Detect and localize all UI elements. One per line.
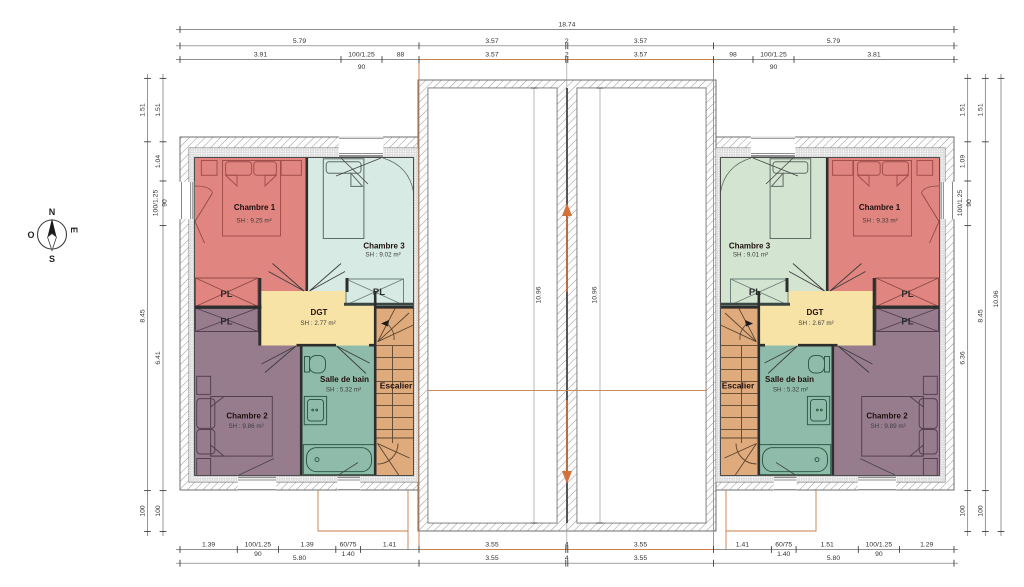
svg-text:1.51: 1.51: [140, 103, 147, 116]
svg-text:1.04: 1.04: [155, 155, 162, 168]
svg-text:SH : 2.77 m²: SH : 2.77 m²: [300, 320, 335, 327]
svg-text:DGT: DGT: [311, 308, 328, 317]
svg-text:1.40: 1.40: [777, 551, 790, 558]
svg-text:SH : 9.89 m²: SH : 9.89 m²: [870, 423, 905, 430]
svg-text:Chambre 2: Chambre 2: [226, 411, 268, 420]
svg-text:6.36: 6.36: [960, 351, 967, 364]
svg-text:98: 98: [729, 52, 737, 59]
svg-text:60/75: 60/75: [340, 542, 357, 549]
svg-text:PL: PL: [749, 287, 761, 298]
svg-text:Salle de bain: Salle de bain: [765, 375, 814, 384]
svg-text:Chambre 1: Chambre 1: [234, 203, 276, 212]
svg-text:PL: PL: [901, 317, 913, 328]
svg-text:4: 4: [565, 542, 569, 549]
svg-text:90: 90: [358, 64, 366, 71]
svg-text:90: 90: [966, 199, 973, 207]
svg-text:SH : 9.01 m²: SH : 9.01 m²: [733, 252, 768, 259]
svg-text:10.96: 10.96: [993, 290, 1000, 307]
svg-text:100/1.25: 100/1.25: [348, 52, 375, 59]
svg-text:2: 2: [565, 52, 569, 59]
svg-text:3.57: 3.57: [634, 38, 647, 45]
svg-text:60/75: 60/75: [775, 542, 792, 549]
svg-text:Chambre 2: Chambre 2: [866, 411, 908, 420]
svg-text:100/1.25: 100/1.25: [866, 542, 893, 549]
svg-text:SH : 9.02 m²: SH : 9.02 m²: [365, 252, 400, 259]
svg-text:PL: PL: [220, 317, 232, 328]
svg-text:SH : 5.32 m²: SH : 5.32 m²: [773, 387, 808, 394]
svg-text:3.55: 3.55: [485, 542, 498, 549]
svg-text:Salle de bain: Salle de bain: [320, 375, 369, 384]
svg-text:88: 88: [397, 52, 405, 59]
svg-text:Escalier: Escalier: [380, 380, 413, 390]
svg-text:Chambre 3: Chambre 3: [729, 242, 771, 251]
svg-text:3.57: 3.57: [634, 52, 647, 59]
svg-text:90: 90: [875, 551, 883, 558]
svg-text:O: O: [27, 230, 34, 240]
svg-text:1.40: 1.40: [341, 551, 354, 558]
svg-text:100/1.25: 100/1.25: [245, 542, 272, 549]
svg-text:10.96: 10.96: [592, 286, 599, 303]
svg-text:3.55: 3.55: [485, 555, 498, 562]
svg-text:10.96: 10.96: [536, 286, 543, 303]
svg-text:1.51: 1.51: [821, 542, 834, 549]
svg-text:1.09: 1.09: [960, 155, 967, 168]
svg-text:6.41: 6.41: [155, 351, 162, 364]
svg-text:100/1.25: 100/1.25: [760, 52, 787, 59]
svg-text:E: E: [69, 227, 79, 233]
svg-text:PL: PL: [373, 287, 385, 298]
svg-text:100: 100: [140, 505, 147, 517]
svg-text:5.79: 5.79: [827, 38, 840, 45]
svg-text:PL: PL: [901, 289, 913, 300]
svg-text:3.91: 3.91: [254, 52, 267, 59]
svg-text:DGT: DGT: [807, 308, 824, 317]
svg-text:3.55: 3.55: [634, 542, 647, 549]
svg-text:3.57: 3.57: [485, 52, 498, 59]
svg-text:1.39: 1.39: [202, 542, 215, 549]
svg-text:2: 2: [565, 38, 569, 45]
svg-text:1.29: 1.29: [920, 542, 933, 549]
svg-text:4: 4: [565, 555, 569, 562]
svg-text:100: 100: [977, 505, 984, 517]
svg-text:100: 100: [960, 505, 967, 517]
svg-text:3.55: 3.55: [634, 555, 647, 562]
svg-text:100/1.25: 100/1.25: [957, 190, 964, 217]
svg-text:SH : 9.86 m²: SH : 9.86 m²: [228, 423, 263, 430]
svg-text:3.81: 3.81: [867, 52, 880, 59]
svg-text:18.74: 18.74: [558, 22, 575, 29]
svg-text:SH : 9.33 m²: SH : 9.33 m²: [862, 218, 897, 225]
svg-text:5.79: 5.79: [293, 38, 306, 45]
svg-text:PL: PL: [220, 289, 232, 300]
svg-text:Escalier: Escalier: [722, 380, 755, 390]
svg-text:N: N: [49, 207, 56, 217]
svg-text:SH : 5.32 m²: SH : 5.32 m²: [326, 387, 361, 394]
svg-text:8.45: 8.45: [140, 309, 147, 322]
svg-text:3.57: 3.57: [485, 38, 498, 45]
svg-text:1.39: 1.39: [300, 542, 313, 549]
svg-text:1.41: 1.41: [383, 542, 396, 549]
svg-text:90: 90: [254, 551, 262, 558]
svg-text:100/1.25: 100/1.25: [153, 190, 160, 217]
svg-text:8.45: 8.45: [977, 309, 984, 322]
svg-text:90: 90: [770, 64, 778, 71]
svg-text:Chambre 1: Chambre 1: [859, 203, 901, 212]
svg-text:1.51: 1.51: [155, 103, 162, 116]
svg-text:Chambre 3: Chambre 3: [363, 242, 405, 251]
svg-text:1.51: 1.51: [960, 103, 967, 116]
svg-text:SH : 9.25 m²: SH : 9.25 m²: [236, 218, 271, 225]
svg-text:100: 100: [155, 505, 162, 517]
svg-text:S: S: [49, 254, 55, 264]
svg-text:1.51: 1.51: [977, 103, 984, 116]
svg-text:5.80: 5.80: [827, 555, 840, 562]
svg-text:5.80: 5.80: [293, 555, 306, 562]
svg-text:1.41: 1.41: [736, 542, 749, 549]
svg-text:SH : 2.67 m²: SH : 2.67 m²: [798, 320, 833, 327]
svg-text:90: 90: [162, 199, 169, 207]
